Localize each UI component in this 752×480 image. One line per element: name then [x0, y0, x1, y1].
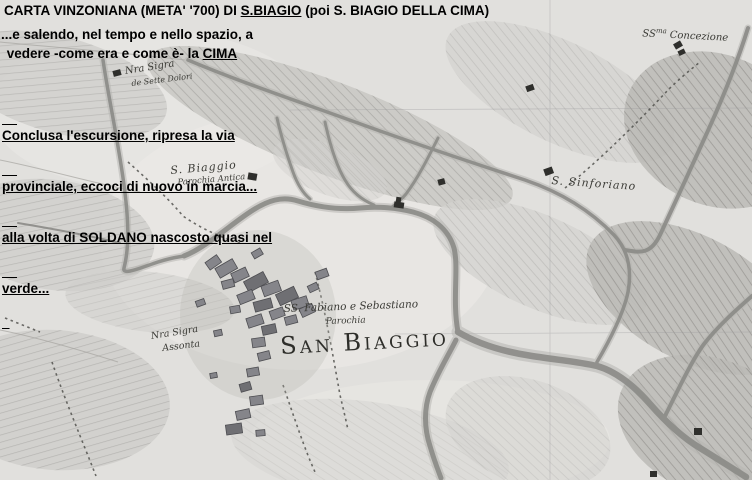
page-title: CARTA VINZONIANA (META' '700) DI S.BIAGI…	[4, 3, 489, 19]
title-text-prefix: CARTA VINZONIANA (META' '700) DI	[4, 3, 241, 18]
map-label-parochia: Parochia	[326, 316, 366, 327]
note-line[interactable]: alla volta di SOLDANO nascosto quasi nel	[2, 229, 272, 246]
note-link-block[interactable]: Conclusa l'escursione, ripresa la via pr…	[2, 93, 272, 331]
scanned-map-page: Nra Sigra de Sette Dolori S. Biaggio Par…	[0, 0, 752, 480]
subtitle-text: vedere -come era e come è- la	[3, 46, 203, 61]
link-s-biagio[interactable]: S.BIAGIO	[241, 3, 302, 18]
note-line[interactable]: provinciale, eccoci di nuovo in marcia..…	[2, 178, 272, 195]
title-text-suffix: (poi S. BIAGIO DELLA CIMA)	[301, 3, 489, 18]
link-cima[interactable]: CIMA	[203, 46, 238, 61]
note-line[interactable]: Conclusa l'escursione, ripresa la via	[2, 127, 272, 144]
subtitle-line2: vedere -come era e come è- la CIMA	[3, 46, 237, 62]
subtitle-line1: ...e salendo, nel tempo e nello spazio, …	[1, 27, 253, 43]
note-line[interactable]: verde...	[2, 280, 272, 297]
